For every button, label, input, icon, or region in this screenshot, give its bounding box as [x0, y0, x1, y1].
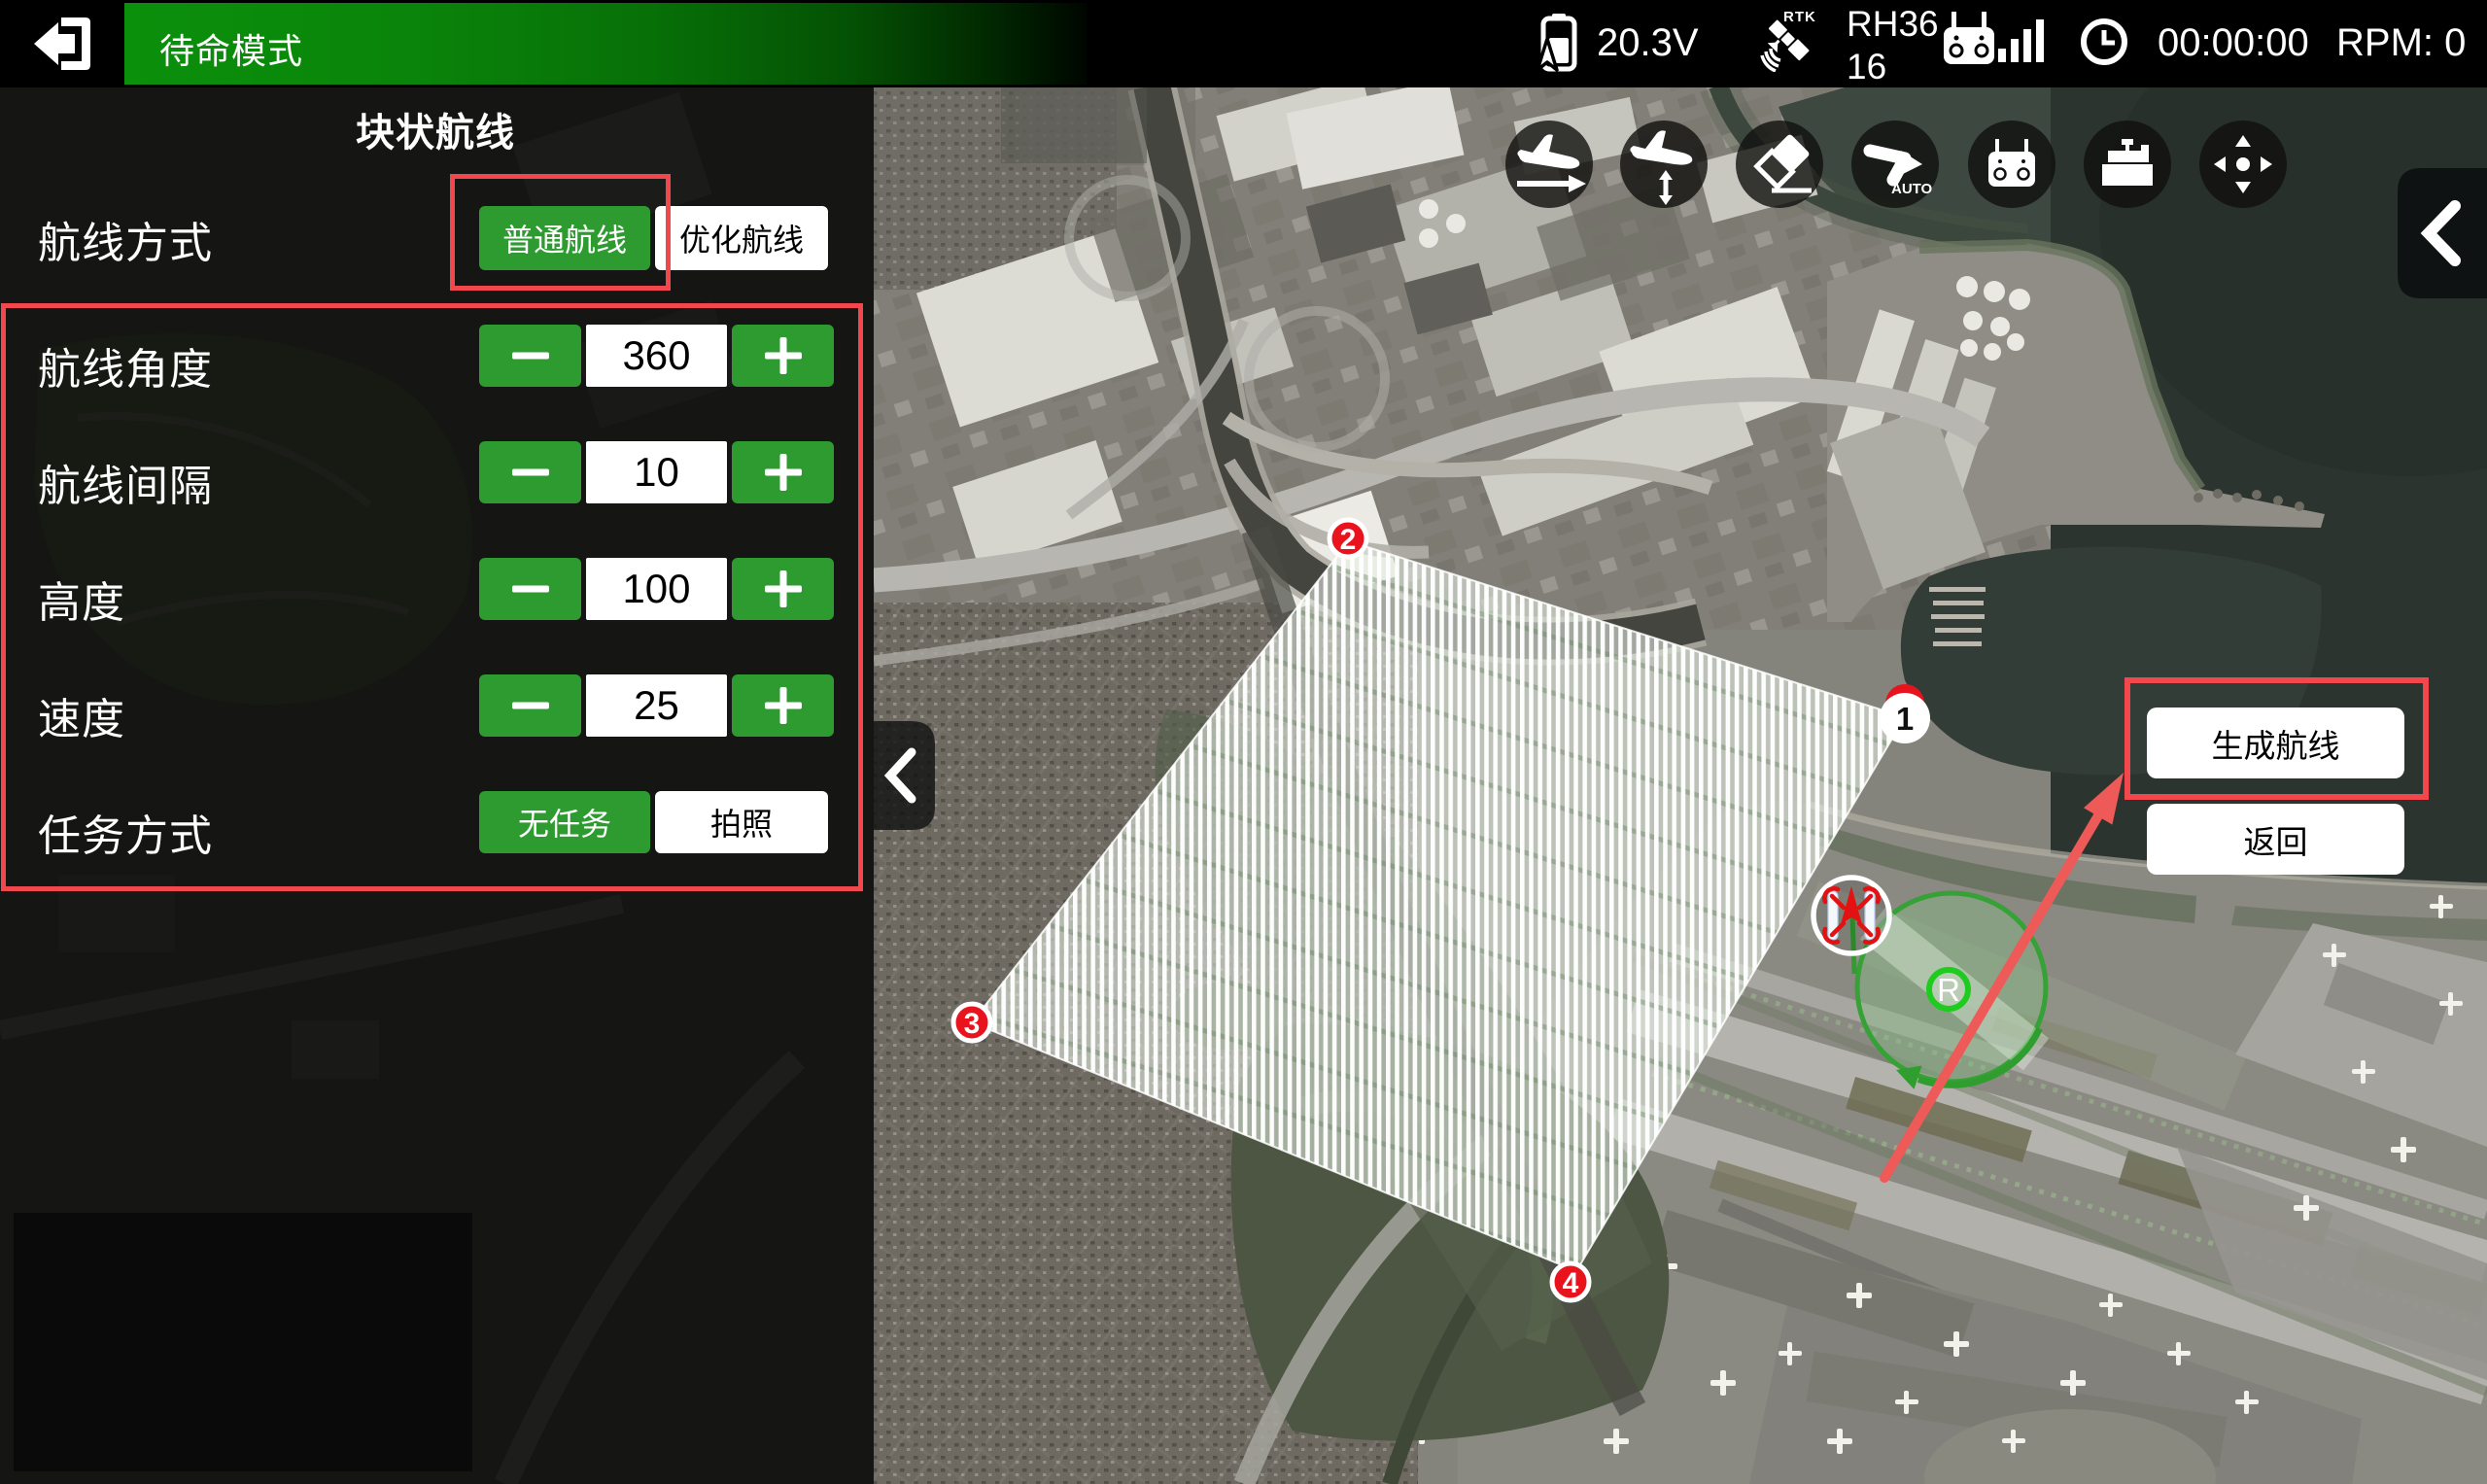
svg-text:3: 3	[964, 1008, 981, 1040]
svg-text:RTK: RTK	[1783, 9, 1816, 25]
svg-text:AUTO: AUTO	[1891, 181, 1933, 197]
svg-text:2: 2	[1340, 524, 1357, 556]
svg-text:4: 4	[1563, 1267, 1579, 1299]
svg-text:1: 1	[1896, 701, 1914, 737]
svg-text:R: R	[1937, 972, 1960, 1008]
